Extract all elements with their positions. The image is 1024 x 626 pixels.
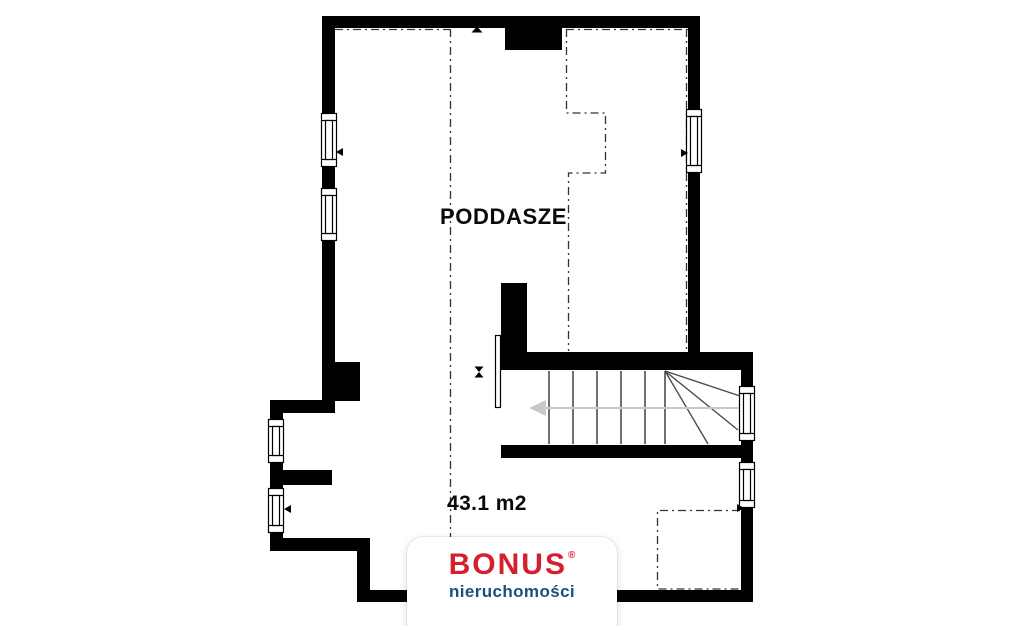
roofline-group bbox=[335, 29, 740, 589]
chimney-top bbox=[505, 28, 562, 50]
staircase-group bbox=[529, 371, 740, 444]
window-right-stairs bbox=[740, 387, 755, 441]
floorplan-drawing bbox=[0, 0, 1024, 626]
wall-bottom-left bbox=[270, 538, 370, 551]
wall-stair-bottom bbox=[501, 445, 741, 458]
window-right-lower bbox=[740, 463, 755, 508]
window-left-4 bbox=[269, 489, 284, 533]
door-group bbox=[475, 336, 501, 408]
registered-mark-icon: ® bbox=[568, 551, 575, 561]
wall-top bbox=[322, 16, 700, 28]
brand-name: BONUS bbox=[449, 550, 567, 580]
stair-winder bbox=[665, 371, 738, 430]
brand-tagline: nieruchomości bbox=[449, 582, 575, 602]
floorplan-canvas: PODDASZE 43.1 m2 BONUS ® nieruchomości bbox=[0, 0, 1024, 626]
watermark-card: BONUS ® nieruchomości bbox=[407, 537, 617, 626]
stair-direction-arrow-icon bbox=[529, 400, 739, 416]
door-pivot-icon bbox=[475, 367, 484, 378]
stair-winder bbox=[665, 371, 740, 396]
window-left-1 bbox=[322, 114, 337, 167]
door-leaf bbox=[496, 336, 501, 408]
wall-stair-top bbox=[501, 352, 753, 370]
wall-stub-left bbox=[270, 470, 332, 485]
window-right-top bbox=[687, 110, 702, 173]
wall-right-upper bbox=[688, 16, 700, 370]
window-handle-icon bbox=[284, 505, 291, 513]
room-label: PODDASZE bbox=[440, 204, 567, 230]
window-left-2 bbox=[322, 189, 337, 241]
brand-logo: BONUS ® bbox=[449, 550, 576, 580]
attic-outline-lower-right bbox=[658, 511, 741, 590]
window-left-3 bbox=[269, 420, 284, 463]
area-label: 43.1 m2 bbox=[447, 492, 527, 516]
chimney-left bbox=[335, 362, 360, 401]
roofline-vertical-mid bbox=[567, 29, 606, 351]
